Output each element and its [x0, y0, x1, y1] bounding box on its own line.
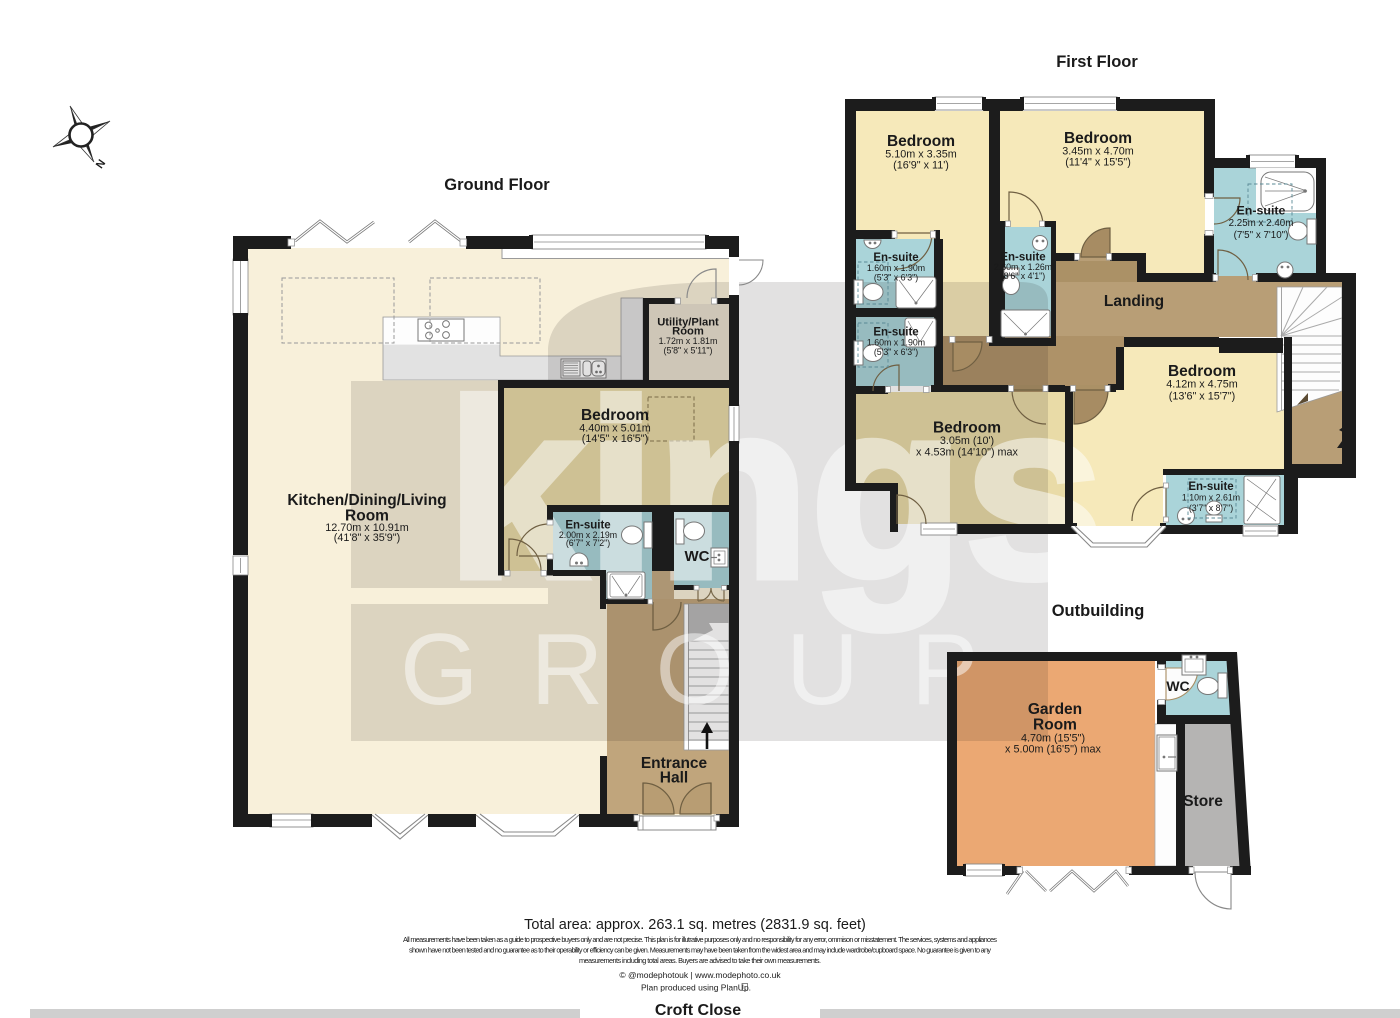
svg-text:(11'4" x 15'5"): (11'4" x 15'5"): [1065, 157, 1131, 169]
svg-text:Bedroom: Bedroom: [933, 420, 1001, 437]
svg-text:Garden: Garden: [1028, 701, 1082, 718]
svg-text:N: N: [94, 158, 108, 171]
svg-text:Outbuilding: Outbuilding: [1052, 602, 1145, 620]
svg-text:Bedroom: Bedroom: [581, 407, 649, 424]
svg-text:1.60m x 1.90m: 1.60m x 1.90m: [867, 337, 925, 347]
svg-text:1.60m x 1.90m: 1.60m x 1.90m: [867, 263, 925, 273]
svg-text:Bedroom: Bedroom: [887, 133, 955, 150]
svg-text:Kitchen/Dining/Living: Kitchen/Dining/Living: [287, 492, 446, 509]
svg-text:(41'8" x 35'9"): (41'8" x 35'9"): [334, 532, 400, 544]
svg-text:Bedroom: Bedroom: [1064, 130, 1132, 147]
svg-text:Croft Close: Croft Close: [655, 1002, 741, 1018]
svg-text:4.12m x 4.75m: 4.12m x 4.75m: [1166, 379, 1237, 391]
svg-text:Store: Store: [1183, 793, 1223, 810]
svg-text:Plan produced using PlanUp.: Plan produced using PlanUp.: [641, 983, 751, 993]
svg-text:shown have not been tested and: shown have not been tested and no guaran…: [409, 946, 991, 955]
svg-text:© @modephotouk | www.modephoto: © @modephotouk | www.modephoto.co.uk: [619, 970, 781, 980]
svg-text:(16'9" x 11'): (16'9" x 11'): [893, 160, 949, 172]
svg-text:Bedroom: Bedroom: [1168, 363, 1236, 380]
svg-text:First Floor: First Floor: [1056, 53, 1138, 71]
svg-text:3.05m (10'): 3.05m (10'): [940, 435, 994, 447]
svg-text:measurements including total a: measurements including total areas. Buye…: [579, 956, 821, 965]
svg-text:x 5.00m (16'5") max: x 5.00m (16'5") max: [1005, 744, 1102, 756]
svg-text:En-suite: En-suite: [1188, 481, 1233, 493]
svg-text:GROUP: GROUP: [400, 614, 1030, 726]
svg-text:(14'5" x 16'5"): (14'5" x 16'5"): [582, 433, 648, 445]
svg-text:(5'8" x 5'11"): (5'8" x 5'11"): [664, 346, 713, 356]
svg-text:All measurements have been tak: All measurements have been taken as a gu…: [403, 935, 997, 944]
svg-text:(13'6" x 15'7"): (13'6" x 15'7"): [1169, 391, 1235, 403]
svg-text:WC: WC: [685, 548, 710, 565]
svg-text:(5'3" x 6'3"): (5'3" x 6'3"): [874, 347, 918, 357]
svg-text:(7'5" x 7'10"): (7'5" x 7'10"): [1234, 230, 1289, 241]
svg-text:2.25m x 2.40m: 2.25m x 2.40m: [1229, 218, 1294, 229]
svg-text:En-suite: En-suite: [1237, 204, 1286, 218]
svg-text:Ground Floor: Ground Floor: [444, 176, 550, 194]
svg-text:(5'3" x 6'3"): (5'3" x 6'3"): [874, 273, 918, 283]
svg-text:(3'7" x 8'7"): (3'7" x 8'7"): [1189, 503, 1233, 513]
svg-text:Landing: Landing: [1104, 293, 1164, 310]
svg-text:Room: Room: [1033, 717, 1077, 734]
svg-text:Hall: Hall: [660, 770, 688, 787]
svg-text:1.72m x 1.81m: 1.72m x 1.81m: [659, 336, 718, 346]
svg-text:1.10m x 2.61m: 1.10m x 2.61m: [1182, 493, 1240, 503]
svg-text:Total area: approx. 263.1 sq.: Total area: approx. 263.1 sq. metres (28…: [524, 917, 866, 933]
svg-text:(8'6" x 4'1"): (8'6" x 4'1"): [1001, 271, 1045, 281]
svg-text:x 4.53m (14'10") max: x 4.53m (14'10") max: [916, 447, 1019, 459]
svg-text:(6'7" x 7'2"): (6'7" x 7'2"): [566, 538, 610, 548]
svg-text:kings: kings: [446, 350, 1104, 631]
svg-text:WC: WC: [1166, 678, 1189, 694]
